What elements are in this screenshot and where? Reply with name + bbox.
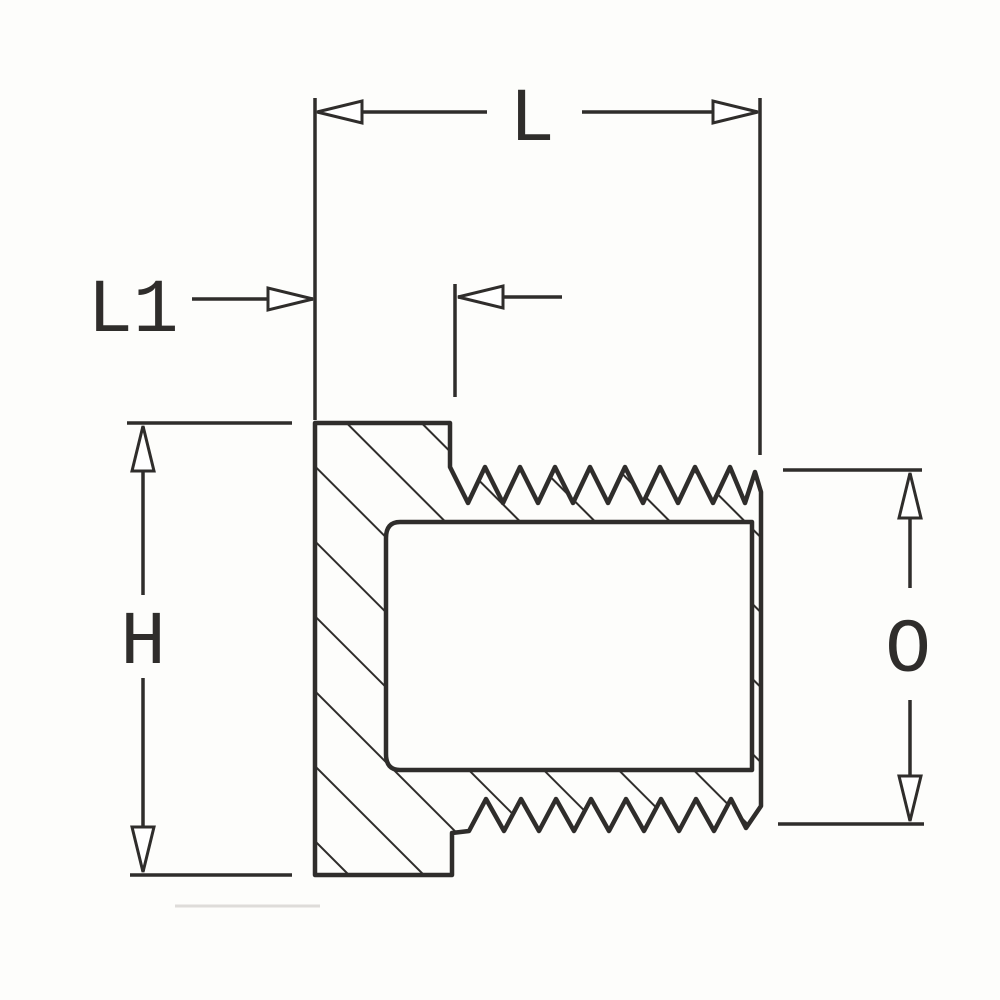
technical-drawing: L L1 H O xyxy=(0,0,1000,1000)
dim-H-arrowhead-up xyxy=(132,426,154,471)
dim-O: O xyxy=(778,470,931,824)
dim-L1-arrowhead-left xyxy=(268,288,313,310)
dim-O-label: O xyxy=(885,608,931,694)
dim-O-arrowhead-down xyxy=(899,776,921,821)
dim-L-arrowhead-left xyxy=(317,101,362,123)
dim-L1: L1 xyxy=(87,268,562,397)
dim-L-arrowhead-right xyxy=(713,101,758,123)
plug-section xyxy=(315,423,761,875)
dim-L-label: L xyxy=(509,77,555,163)
drawing-page: L L1 H O xyxy=(0,0,1000,1000)
dim-L: L xyxy=(315,77,760,455)
dim-H-arrowhead-down xyxy=(132,827,154,872)
dim-L1-label: L1 xyxy=(87,268,178,354)
dim-L1-arrowhead-right xyxy=(458,286,503,308)
dim-O-arrowhead-up xyxy=(899,473,921,518)
dim-H-label: H xyxy=(120,600,166,686)
plug-body-outline xyxy=(315,423,761,875)
dim-H: H xyxy=(120,423,292,875)
